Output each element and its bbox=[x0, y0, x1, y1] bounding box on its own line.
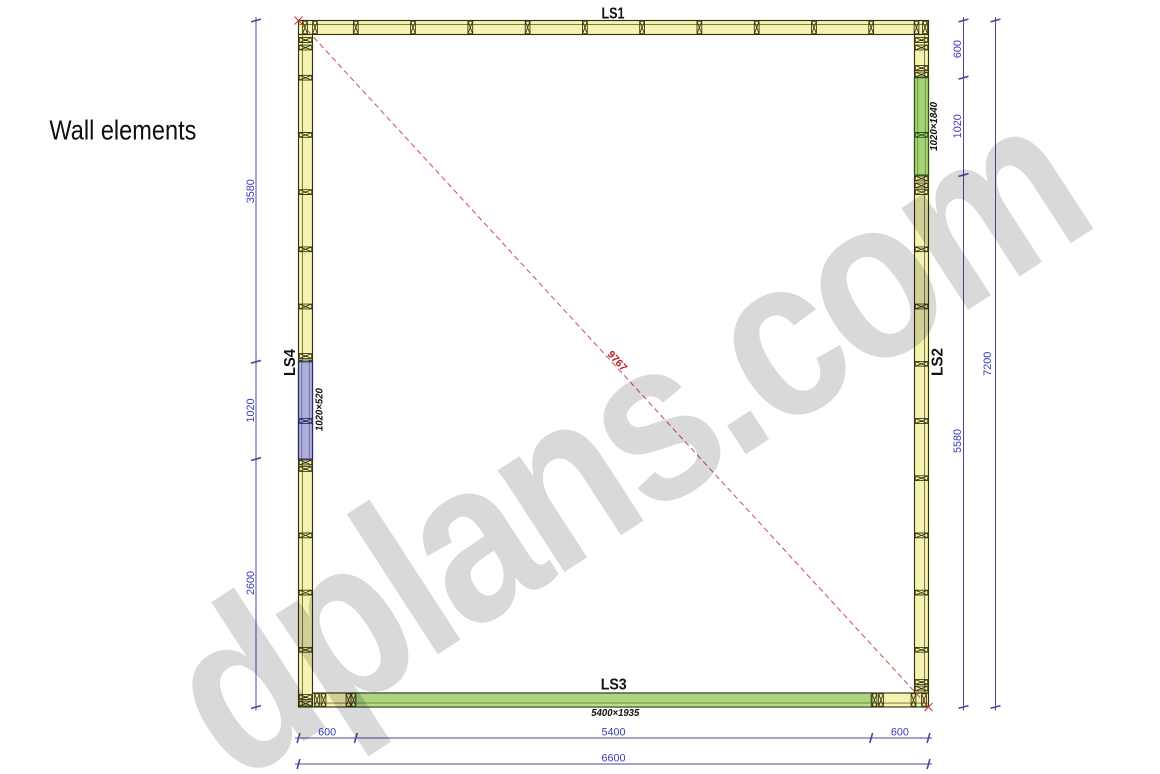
svg-text:LS4: LS4 bbox=[282, 349, 299, 376]
svg-text:600: 600 bbox=[952, 40, 964, 58]
svg-text:600: 600 bbox=[891, 727, 909, 739]
svg-text:5400×1935: 5400×1935 bbox=[591, 708, 639, 719]
svg-text:6600: 6600 bbox=[601, 753, 625, 765]
svg-text:5400: 5400 bbox=[601, 727, 625, 739]
svg-text:1020: 1020 bbox=[245, 398, 257, 422]
svg-text:Wall elements: Wall elements bbox=[49, 114, 196, 145]
svg-text:LS3: LS3 bbox=[601, 677, 627, 694]
svg-text:3580: 3580 bbox=[245, 179, 257, 203]
svg-text:1020×520: 1020×520 bbox=[315, 388, 326, 431]
svg-text:5580: 5580 bbox=[952, 429, 964, 453]
svg-text:LS1: LS1 bbox=[602, 6, 625, 23]
